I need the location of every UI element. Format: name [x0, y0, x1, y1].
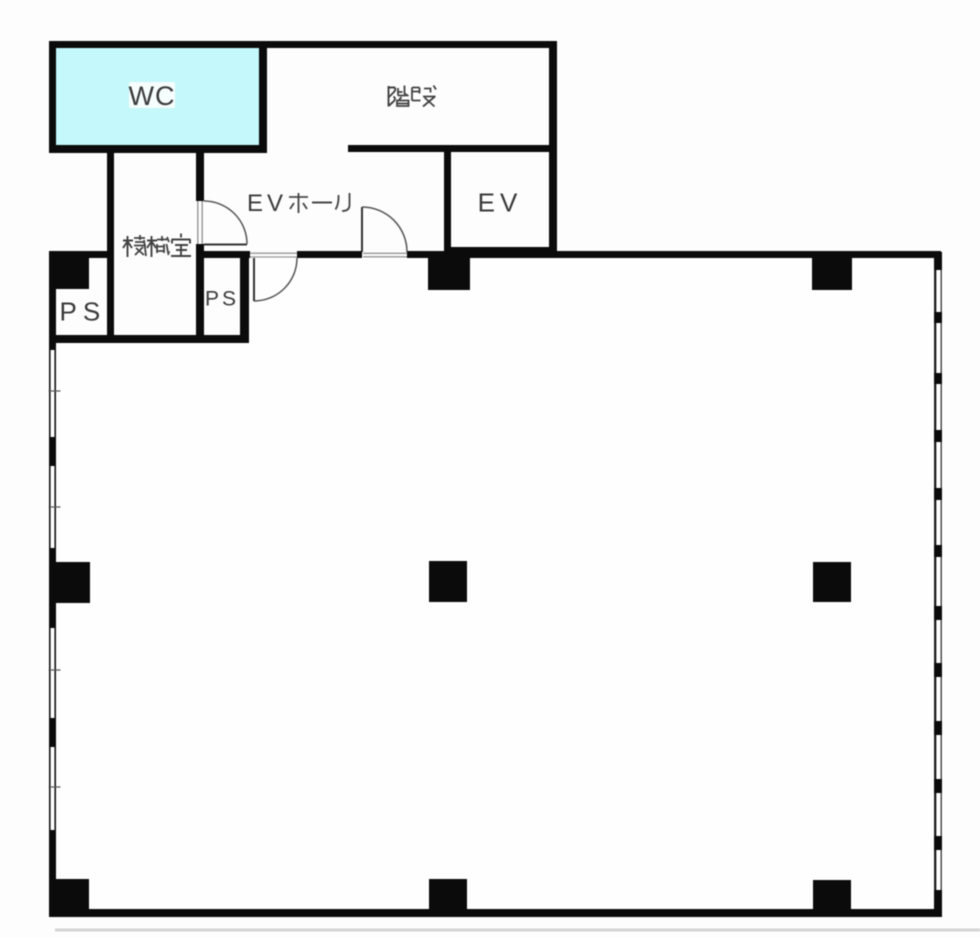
svg-text:WC: WC — [129, 81, 176, 111]
svg-text:EV: EV — [478, 188, 523, 218]
svg-text:PS: PS — [60, 297, 107, 327]
svg-text:EV: EV — [247, 190, 287, 217]
svg-text:PS: PS — [205, 288, 239, 311]
